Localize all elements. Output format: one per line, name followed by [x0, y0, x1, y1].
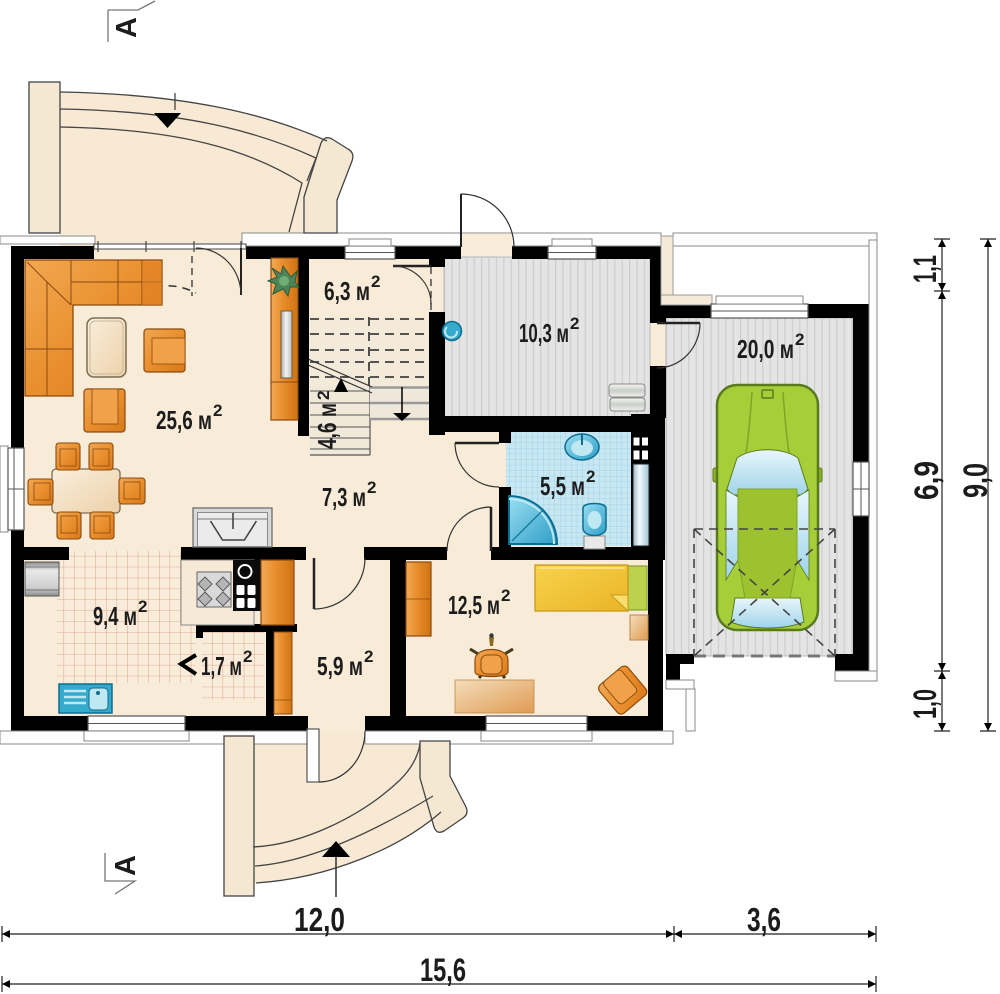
svg-text:3,6: 3,6: [747, 901, 781, 938]
svg-text:A: A: [110, 855, 142, 876]
svg-text:2: 2: [364, 647, 373, 666]
svg-text:2: 2: [501, 586, 510, 605]
svg-text:9,0: 9,0: [957, 463, 995, 498]
svg-text:4,6 м: 4,6 м: [312, 403, 342, 449]
svg-text:7,3 м: 7,3 м: [322, 482, 366, 512]
svg-text:6,3 м: 6,3 м: [324, 276, 370, 306]
svg-text:9,4 м: 9,4 м: [93, 601, 137, 631]
svg-text:12,5 м: 12,5 м: [448, 590, 500, 620]
svg-text:2: 2: [138, 597, 147, 616]
svg-text:12,0: 12,0: [294, 901, 345, 938]
svg-text:2: 2: [213, 401, 222, 420]
svg-text:5,5 м: 5,5 м: [540, 471, 585, 501]
svg-text:1,1: 1,1: [907, 255, 943, 283]
svg-text:15,6: 15,6: [420, 952, 466, 988]
svg-text:20,0 м: 20,0 м: [737, 334, 794, 364]
svg-text:A: A: [111, 17, 143, 38]
svg-text:1,7 м: 1,7 м: [201, 651, 242, 681]
svg-text:2: 2: [371, 272, 380, 291]
svg-text:2: 2: [586, 467, 595, 486]
svg-text:5,9 м: 5,9 м: [317, 651, 363, 681]
svg-text:1,0: 1,0: [907, 689, 943, 719]
svg-text:25,6 м: 25,6 м: [156, 405, 212, 435]
svg-text:2: 2: [314, 391, 333, 400]
svg-text:2: 2: [795, 330, 804, 349]
svg-text:2: 2: [367, 478, 376, 497]
svg-text:10,3 м: 10,3 м: [519, 318, 569, 348]
svg-text:2: 2: [243, 647, 252, 666]
svg-text:6,9: 6,9: [908, 461, 946, 500]
svg-text:2: 2: [570, 314, 579, 333]
